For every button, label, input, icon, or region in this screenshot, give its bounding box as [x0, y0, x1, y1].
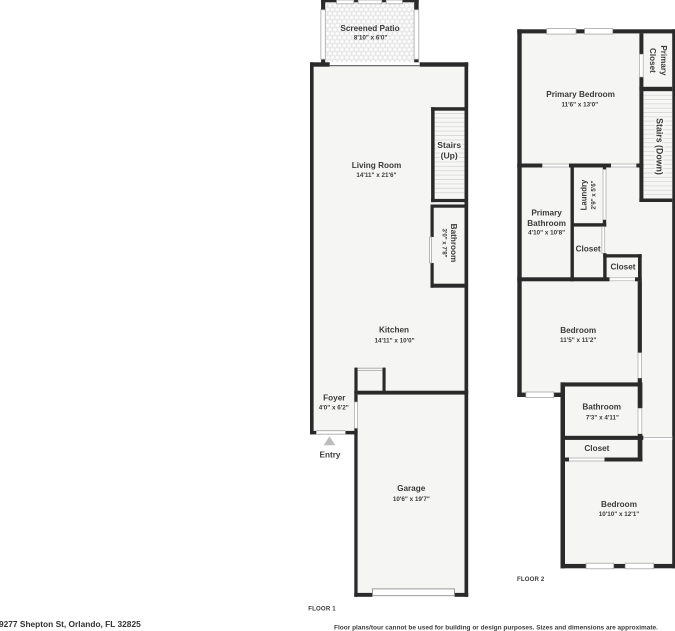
svg-text:3'0" x 7'8": 3'0" x 7'8": [441, 228, 448, 257]
svg-text:Closet: Closet: [648, 48, 657, 73]
svg-text:Foyer: Foyer: [323, 394, 346, 403]
svg-text:11'5" x 11'2": 11'5" x 11'2": [560, 337, 596, 344]
svg-text:Garage: Garage: [397, 484, 426, 493]
svg-text:(Up): (Up): [441, 151, 458, 161]
svg-text:FLOOR 2: FLOOR 2: [517, 576, 545, 583]
svg-text:7'3" x 4'11": 7'3" x 4'11": [586, 414, 619, 421]
svg-text:Closet: Closet: [576, 245, 601, 254]
svg-text:2'9" x 5'6": 2'9" x 5'6": [590, 180, 597, 209]
svg-text:Laundry: Laundry: [580, 179, 589, 210]
svg-text:Closet: Closet: [584, 444, 609, 453]
svg-text:Primary: Primary: [659, 45, 668, 76]
svg-text:Entry: Entry: [320, 451, 341, 460]
svg-text:Bathroom: Bathroom: [527, 219, 566, 228]
svg-text:Closet: Closet: [610, 262, 635, 271]
svg-text:Bathroom: Bathroom: [449, 224, 458, 263]
svg-text:Stairs: Stairs: [437, 140, 461, 150]
svg-text:10'10" x 12'1": 10'10" x 12'1": [599, 511, 639, 518]
svg-text:Bathroom: Bathroom: [582, 403, 621, 412]
svg-text:Primary Bedroom: Primary Bedroom: [546, 90, 615, 99]
svg-text:9277 Shepton St, Orlando, FL 3: 9277 Shepton St, Orlando, FL 32825: [0, 619, 141, 629]
svg-text:Bedroom: Bedroom: [601, 500, 637, 509]
svg-text:14'11" x 21'6": 14'11" x 21'6": [356, 172, 396, 179]
svg-text:Stairs (Down): Stairs (Down): [655, 118, 665, 175]
svg-text:Floor plans/tour cannot be use: Floor plans/tour cannot be used for buil…: [334, 625, 658, 631]
svg-text:Kitchen: Kitchen: [379, 326, 409, 335]
svg-text:10'6" x 19'7": 10'6" x 19'7": [393, 496, 430, 503]
svg-text:Bedroom: Bedroom: [560, 326, 596, 335]
svg-text:FLOOR 1: FLOOR 1: [308, 606, 336, 613]
svg-text:8'10" x 6'0": 8'10" x 6'0": [354, 35, 387, 42]
svg-text:Screened Patio: Screened Patio: [340, 24, 399, 33]
svg-text:14'11" x 10'0": 14'11" x 10'0": [375, 337, 415, 344]
svg-text:Living Room: Living Room: [352, 161, 402, 170]
svg-text:Primary: Primary: [531, 209, 562, 218]
svg-text:4'0" x 6'2": 4'0" x 6'2": [319, 404, 349, 411]
svg-text:11'6" x 13'0": 11'6" x 13'0": [561, 101, 598, 108]
svg-text:4'10" x 10'8": 4'10" x 10'8": [528, 229, 565, 236]
